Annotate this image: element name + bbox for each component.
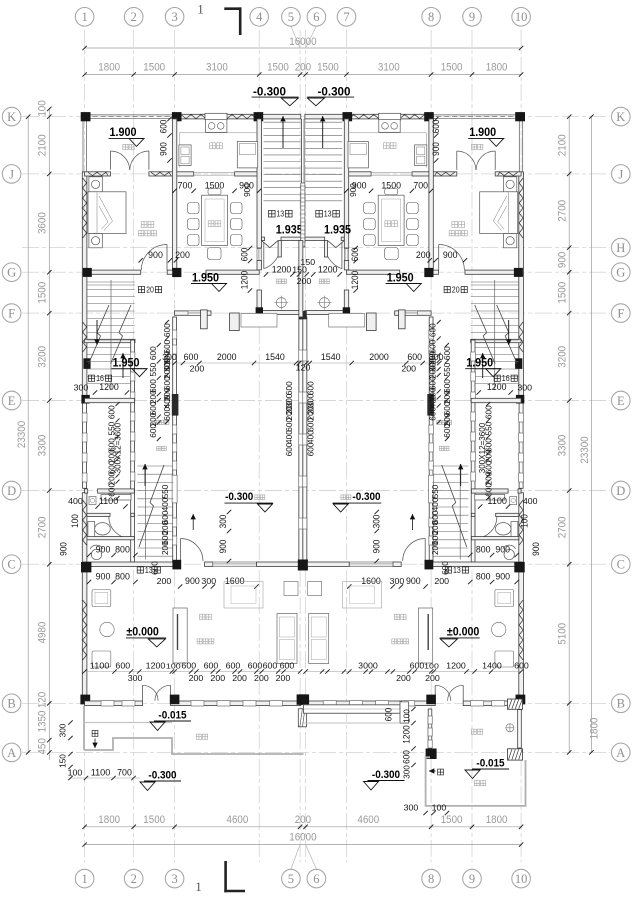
svg-text:10: 10 bbox=[515, 872, 528, 886]
svg-text:2000: 2000 bbox=[369, 352, 389, 362]
svg-text:1.950: 1.950 bbox=[387, 270, 414, 284]
svg-text:1: 1 bbox=[197, 2, 204, 17]
svg-text:5: 5 bbox=[288, 872, 294, 886]
svg-text:150: 150 bbox=[58, 754, 68, 768]
svg-text:5100: 5100 bbox=[557, 623, 569, 645]
svg-text:9: 9 bbox=[469, 872, 475, 886]
svg-text:1500: 1500 bbox=[143, 62, 165, 74]
svg-text:800: 800 bbox=[476, 545, 491, 555]
svg-text:B: B bbox=[7, 697, 15, 711]
svg-text:16000: 16000 bbox=[289, 36, 316, 48]
svg-text:1600: 1600 bbox=[225, 576, 245, 586]
svg-text:900: 900 bbox=[406, 576, 421, 586]
svg-text:7: 7 bbox=[343, 10, 349, 24]
svg-text:1800: 1800 bbox=[98, 62, 120, 74]
svg-text:600: 600 bbox=[181, 661, 196, 671]
svg-text:600: 600 bbox=[410, 661, 425, 671]
svg-text:600: 600 bbox=[443, 423, 452, 437]
svg-text:100: 100 bbox=[424, 662, 439, 671]
svg-text:9: 9 bbox=[469, 10, 475, 24]
svg-text:400: 400 bbox=[68, 496, 83, 506]
svg-text:6: 6 bbox=[313, 872, 319, 886]
svg-text:1.950: 1.950 bbox=[192, 270, 219, 284]
svg-text:J: J bbox=[618, 167, 623, 181]
svg-text:100: 100 bbox=[68, 768, 83, 778]
svg-text:2700: 2700 bbox=[557, 200, 569, 222]
svg-text:900: 900 bbox=[148, 250, 163, 260]
svg-text:1500: 1500 bbox=[267, 62, 289, 74]
svg-text:-0.300: -0.300 bbox=[148, 770, 176, 782]
svg-text:200: 200 bbox=[297, 276, 312, 286]
svg-text:700: 700 bbox=[117, 768, 132, 778]
svg-text:600: 600 bbox=[429, 323, 438, 337]
svg-text:1350: 1350 bbox=[37, 711, 49, 733]
svg-text:200: 200 bbox=[157, 577, 172, 586]
svg-text:E: E bbox=[617, 394, 625, 408]
svg-text:900: 900 bbox=[218, 540, 228, 554]
svg-text:4600: 4600 bbox=[357, 814, 379, 826]
svg-text:1.950: 1.950 bbox=[113, 356, 140, 370]
svg-text:600: 600 bbox=[307, 442, 316, 456]
svg-text:200: 200 bbox=[210, 674, 225, 683]
svg-text:200: 200 bbox=[425, 674, 440, 683]
svg-text:600: 600 bbox=[285, 417, 294, 431]
svg-text:100: 100 bbox=[432, 803, 447, 813]
svg-text:1100: 1100 bbox=[90, 661, 110, 671]
svg-text:300: 300 bbox=[218, 515, 228, 529]
svg-text:700: 700 bbox=[413, 180, 428, 190]
svg-text:4980: 4980 bbox=[37, 622, 49, 644]
svg-text:1200: 1200 bbox=[446, 661, 466, 671]
svg-text:900: 900 bbox=[96, 572, 111, 582]
svg-text:900: 900 bbox=[239, 180, 254, 190]
svg-text:3200: 3200 bbox=[37, 346, 49, 368]
svg-text:1.935: 1.935 bbox=[324, 223, 351, 237]
svg-text:300: 300 bbox=[74, 384, 89, 393]
svg-text:600: 600 bbox=[107, 482, 116, 496]
svg-text:600: 600 bbox=[151, 561, 160, 575]
svg-text:800: 800 bbox=[115, 545, 130, 555]
svg-text:2100: 2100 bbox=[37, 134, 49, 156]
svg-text:900: 900 bbox=[495, 572, 510, 582]
svg-text:3100: 3100 bbox=[378, 62, 400, 74]
svg-text:1200: 1200 bbox=[487, 382, 507, 392]
svg-text:G: G bbox=[7, 266, 16, 280]
svg-text:900: 900 bbox=[557, 252, 569, 268]
svg-text:1: 1 bbox=[81, 10, 87, 24]
svg-text:1500: 1500 bbox=[317, 62, 339, 74]
svg-text:-0.015: -0.015 bbox=[158, 710, 187, 722]
svg-text:D: D bbox=[7, 484, 16, 498]
svg-text:400: 400 bbox=[429, 394, 438, 408]
svg-text:100: 100 bbox=[520, 514, 530, 528]
svg-text:200: 200 bbox=[434, 577, 449, 586]
svg-text:600: 600 bbox=[402, 750, 412, 764]
svg-text:200: 200 bbox=[161, 541, 170, 555]
svg-text:700: 700 bbox=[178, 180, 193, 190]
svg-text:600: 600 bbox=[431, 120, 441, 134]
svg-text:6: 6 bbox=[313, 10, 319, 24]
svg-text:600: 600 bbox=[163, 406, 172, 420]
svg-text:1800: 1800 bbox=[98, 814, 120, 826]
svg-text:600: 600 bbox=[184, 352, 199, 362]
svg-text:D: D bbox=[616, 484, 625, 498]
svg-text:1500: 1500 bbox=[143, 814, 165, 826]
svg-text:16000: 16000 bbox=[289, 831, 316, 843]
svg-text:1200: 1200 bbox=[146, 661, 166, 671]
svg-text:8: 8 bbox=[428, 10, 434, 24]
svg-text:600: 600 bbox=[115, 661, 130, 671]
svg-text:-0.300: -0.300 bbox=[225, 491, 253, 503]
svg-text:900: 900 bbox=[59, 542, 69, 556]
svg-text:-0.300: -0.300 bbox=[318, 84, 351, 98]
svg-text:600: 600 bbox=[149, 346, 158, 360]
svg-text:600: 600 bbox=[285, 381, 294, 395]
svg-text:300: 300 bbox=[404, 803, 419, 813]
svg-text:8: 8 bbox=[428, 872, 434, 886]
svg-text:3600: 3600 bbox=[37, 212, 49, 234]
svg-text:300: 300 bbox=[517, 384, 532, 393]
svg-text:G: G bbox=[616, 266, 625, 280]
svg-text:1200: 1200 bbox=[402, 725, 412, 743]
svg-text:300: 300 bbox=[402, 765, 412, 779]
svg-text:600: 600 bbox=[429, 406, 438, 420]
svg-text:5: 5 bbox=[288, 10, 294, 24]
svg-text:20: 20 bbox=[452, 285, 460, 294]
svg-text:900: 900 bbox=[185, 576, 200, 586]
svg-text:1500: 1500 bbox=[37, 282, 49, 304]
svg-text:1540: 1540 bbox=[265, 352, 285, 362]
svg-text:200: 200 bbox=[190, 365, 205, 374]
svg-text:120: 120 bbox=[37, 692, 49, 708]
svg-text:100: 100 bbox=[166, 662, 181, 671]
svg-text:1: 1 bbox=[195, 879, 202, 894]
svg-text:B: B bbox=[617, 697, 625, 711]
svg-text:E: E bbox=[8, 394, 16, 408]
svg-text:900: 900 bbox=[352, 180, 367, 190]
svg-text:550: 550 bbox=[161, 484, 170, 498]
svg-text:200: 200 bbox=[254, 674, 269, 683]
svg-text:1500: 1500 bbox=[441, 62, 463, 74]
svg-text:600: 600 bbox=[248, 661, 263, 671]
svg-text:550: 550 bbox=[149, 362, 158, 376]
svg-text:1500: 1500 bbox=[205, 180, 225, 190]
svg-text:600: 600 bbox=[107, 405, 116, 419]
svg-text:13: 13 bbox=[453, 566, 461, 575]
svg-text:200: 200 bbox=[416, 250, 431, 260]
svg-text:600: 600 bbox=[384, 708, 394, 722]
svg-text:20: 20 bbox=[146, 285, 154, 294]
svg-text:400: 400 bbox=[523, 496, 538, 506]
svg-text:600: 600 bbox=[443, 346, 452, 360]
svg-text:13: 13 bbox=[324, 210, 332, 219]
svg-text:-0.300: -0.300 bbox=[253, 84, 286, 98]
svg-text:100: 100 bbox=[37, 100, 49, 116]
svg-text:1500: 1500 bbox=[441, 814, 463, 826]
svg-text:C: C bbox=[7, 558, 15, 572]
svg-text:900: 900 bbox=[531, 542, 541, 556]
svg-text:1200: 1200 bbox=[272, 265, 292, 275]
svg-text:23300: 23300 bbox=[16, 421, 28, 448]
svg-text:100: 100 bbox=[70, 514, 80, 528]
svg-text:600: 600 bbox=[159, 120, 169, 134]
svg-text:200: 200 bbox=[189, 674, 204, 683]
svg-text:900: 900 bbox=[159, 142, 169, 156]
svg-text:A: A bbox=[616, 746, 625, 760]
svg-text:900: 900 bbox=[372, 540, 382, 554]
svg-text:±0.000: ±0.000 bbox=[126, 625, 159, 639]
svg-text:3300: 3300 bbox=[557, 435, 569, 457]
svg-text:1200: 1200 bbox=[350, 271, 360, 289]
svg-text:J: J bbox=[9, 167, 14, 181]
svg-text:600: 600 bbox=[149, 423, 158, 437]
svg-text:550: 550 bbox=[484, 421, 493, 435]
svg-text:300: 300 bbox=[58, 723, 68, 737]
svg-text:200: 200 bbox=[276, 674, 291, 683]
svg-text:23300: 23300 bbox=[579, 436, 591, 463]
svg-text:2700: 2700 bbox=[37, 517, 49, 539]
svg-text:300: 300 bbox=[128, 674, 143, 683]
svg-text:4600: 4600 bbox=[227, 814, 249, 826]
svg-text:400: 400 bbox=[285, 430, 294, 444]
svg-text:200: 200 bbox=[431, 541, 440, 555]
svg-text:1: 1 bbox=[81, 872, 87, 886]
svg-text:13: 13 bbox=[276, 210, 284, 219]
svg-text:300: 300 bbox=[390, 577, 405, 586]
svg-text:200: 200 bbox=[232, 674, 247, 683]
svg-text:F: F bbox=[8, 307, 15, 321]
svg-text:600: 600 bbox=[204, 661, 219, 671]
svg-text:-0.300: -0.300 bbox=[352, 491, 380, 503]
svg-text:800: 800 bbox=[115, 572, 130, 582]
svg-text:200: 200 bbox=[295, 62, 311, 74]
svg-text:3000: 3000 bbox=[358, 661, 378, 671]
svg-text:C: C bbox=[617, 558, 625, 572]
svg-text:1.935: 1.935 bbox=[276, 223, 303, 237]
svg-text:900: 900 bbox=[495, 545, 510, 555]
svg-text:1500: 1500 bbox=[381, 180, 401, 190]
svg-text:600: 600 bbox=[307, 381, 316, 395]
svg-text:550: 550 bbox=[107, 421, 116, 435]
svg-text:600: 600 bbox=[307, 417, 316, 431]
svg-text:2700: 2700 bbox=[557, 517, 569, 539]
svg-text:-0.015: -0.015 bbox=[476, 758, 505, 770]
svg-text:1500: 1500 bbox=[557, 282, 569, 304]
svg-text:600: 600 bbox=[407, 352, 422, 362]
svg-text:400: 400 bbox=[431, 497, 440, 511]
svg-text:550: 550 bbox=[443, 362, 452, 376]
svg-text:3100: 3100 bbox=[206, 62, 228, 74]
svg-text:600: 600 bbox=[163, 323, 172, 337]
svg-text:900: 900 bbox=[431, 142, 441, 156]
svg-text:200: 200 bbox=[396, 674, 411, 683]
svg-text:1.900: 1.900 bbox=[469, 125, 496, 139]
svg-text:100: 100 bbox=[402, 709, 412, 723]
svg-text:K: K bbox=[616, 110, 625, 124]
svg-text:4: 4 bbox=[256, 10, 263, 24]
svg-text:400: 400 bbox=[307, 430, 316, 444]
svg-text:900: 900 bbox=[96, 545, 111, 555]
svg-text:1800: 1800 bbox=[486, 62, 508, 74]
svg-text:900: 900 bbox=[443, 250, 458, 260]
svg-text:1800: 1800 bbox=[486, 814, 508, 826]
svg-text:3300: 3300 bbox=[37, 435, 49, 457]
svg-text:1400: 1400 bbox=[482, 661, 502, 671]
svg-text:1800: 1800 bbox=[589, 718, 601, 740]
svg-text:600: 600 bbox=[484, 405, 493, 419]
svg-text:3: 3 bbox=[171, 10, 177, 24]
svg-text:2: 2 bbox=[131, 10, 137, 24]
svg-text:1100: 1100 bbox=[91, 768, 111, 778]
svg-text:300: 300 bbox=[372, 515, 382, 529]
svg-text:600: 600 bbox=[263, 661, 278, 671]
svg-text:1200: 1200 bbox=[99, 382, 119, 392]
svg-text:800: 800 bbox=[476, 572, 491, 582]
svg-text:2: 2 bbox=[131, 872, 137, 886]
svg-text:10: 10 bbox=[515, 10, 528, 24]
svg-text:3200: 3200 bbox=[557, 346, 569, 368]
svg-text:-0.300: -0.300 bbox=[372, 769, 400, 781]
svg-text:600: 600 bbox=[441, 561, 450, 575]
svg-text:600: 600 bbox=[285, 442, 294, 456]
svg-text:1.900: 1.900 bbox=[110, 125, 137, 139]
svg-text:200: 200 bbox=[401, 365, 416, 374]
svg-text:F: F bbox=[617, 307, 624, 321]
svg-text:1600: 1600 bbox=[361, 576, 381, 586]
svg-text:550: 550 bbox=[431, 484, 440, 498]
svg-text:450: 450 bbox=[37, 738, 49, 754]
svg-text:600: 600 bbox=[514, 661, 529, 671]
svg-text:3: 3 bbox=[171, 872, 177, 886]
svg-text:±0.000: ±0.000 bbox=[447, 625, 480, 639]
svg-text:2100: 2100 bbox=[557, 134, 569, 156]
svg-text:200: 200 bbox=[295, 814, 311, 826]
svg-text:600: 600 bbox=[280, 661, 295, 671]
svg-text:1200: 1200 bbox=[240, 271, 250, 289]
svg-text:A: A bbox=[7, 746, 16, 760]
svg-text:120: 120 bbox=[296, 364, 311, 373]
svg-text:400: 400 bbox=[161, 497, 170, 511]
svg-text:1540: 1540 bbox=[321, 352, 341, 362]
svg-text:H: H bbox=[616, 241, 625, 255]
svg-text:600: 600 bbox=[484, 482, 493, 496]
svg-text:1200: 1200 bbox=[318, 265, 338, 275]
svg-text:600: 600 bbox=[226, 661, 241, 671]
svg-text:K: K bbox=[7, 110, 16, 124]
svg-text:1.950: 1.950 bbox=[466, 356, 493, 370]
svg-text:600: 600 bbox=[350, 248, 360, 262]
svg-text:300: 300 bbox=[201, 577, 216, 586]
svg-text:2000: 2000 bbox=[217, 352, 237, 362]
